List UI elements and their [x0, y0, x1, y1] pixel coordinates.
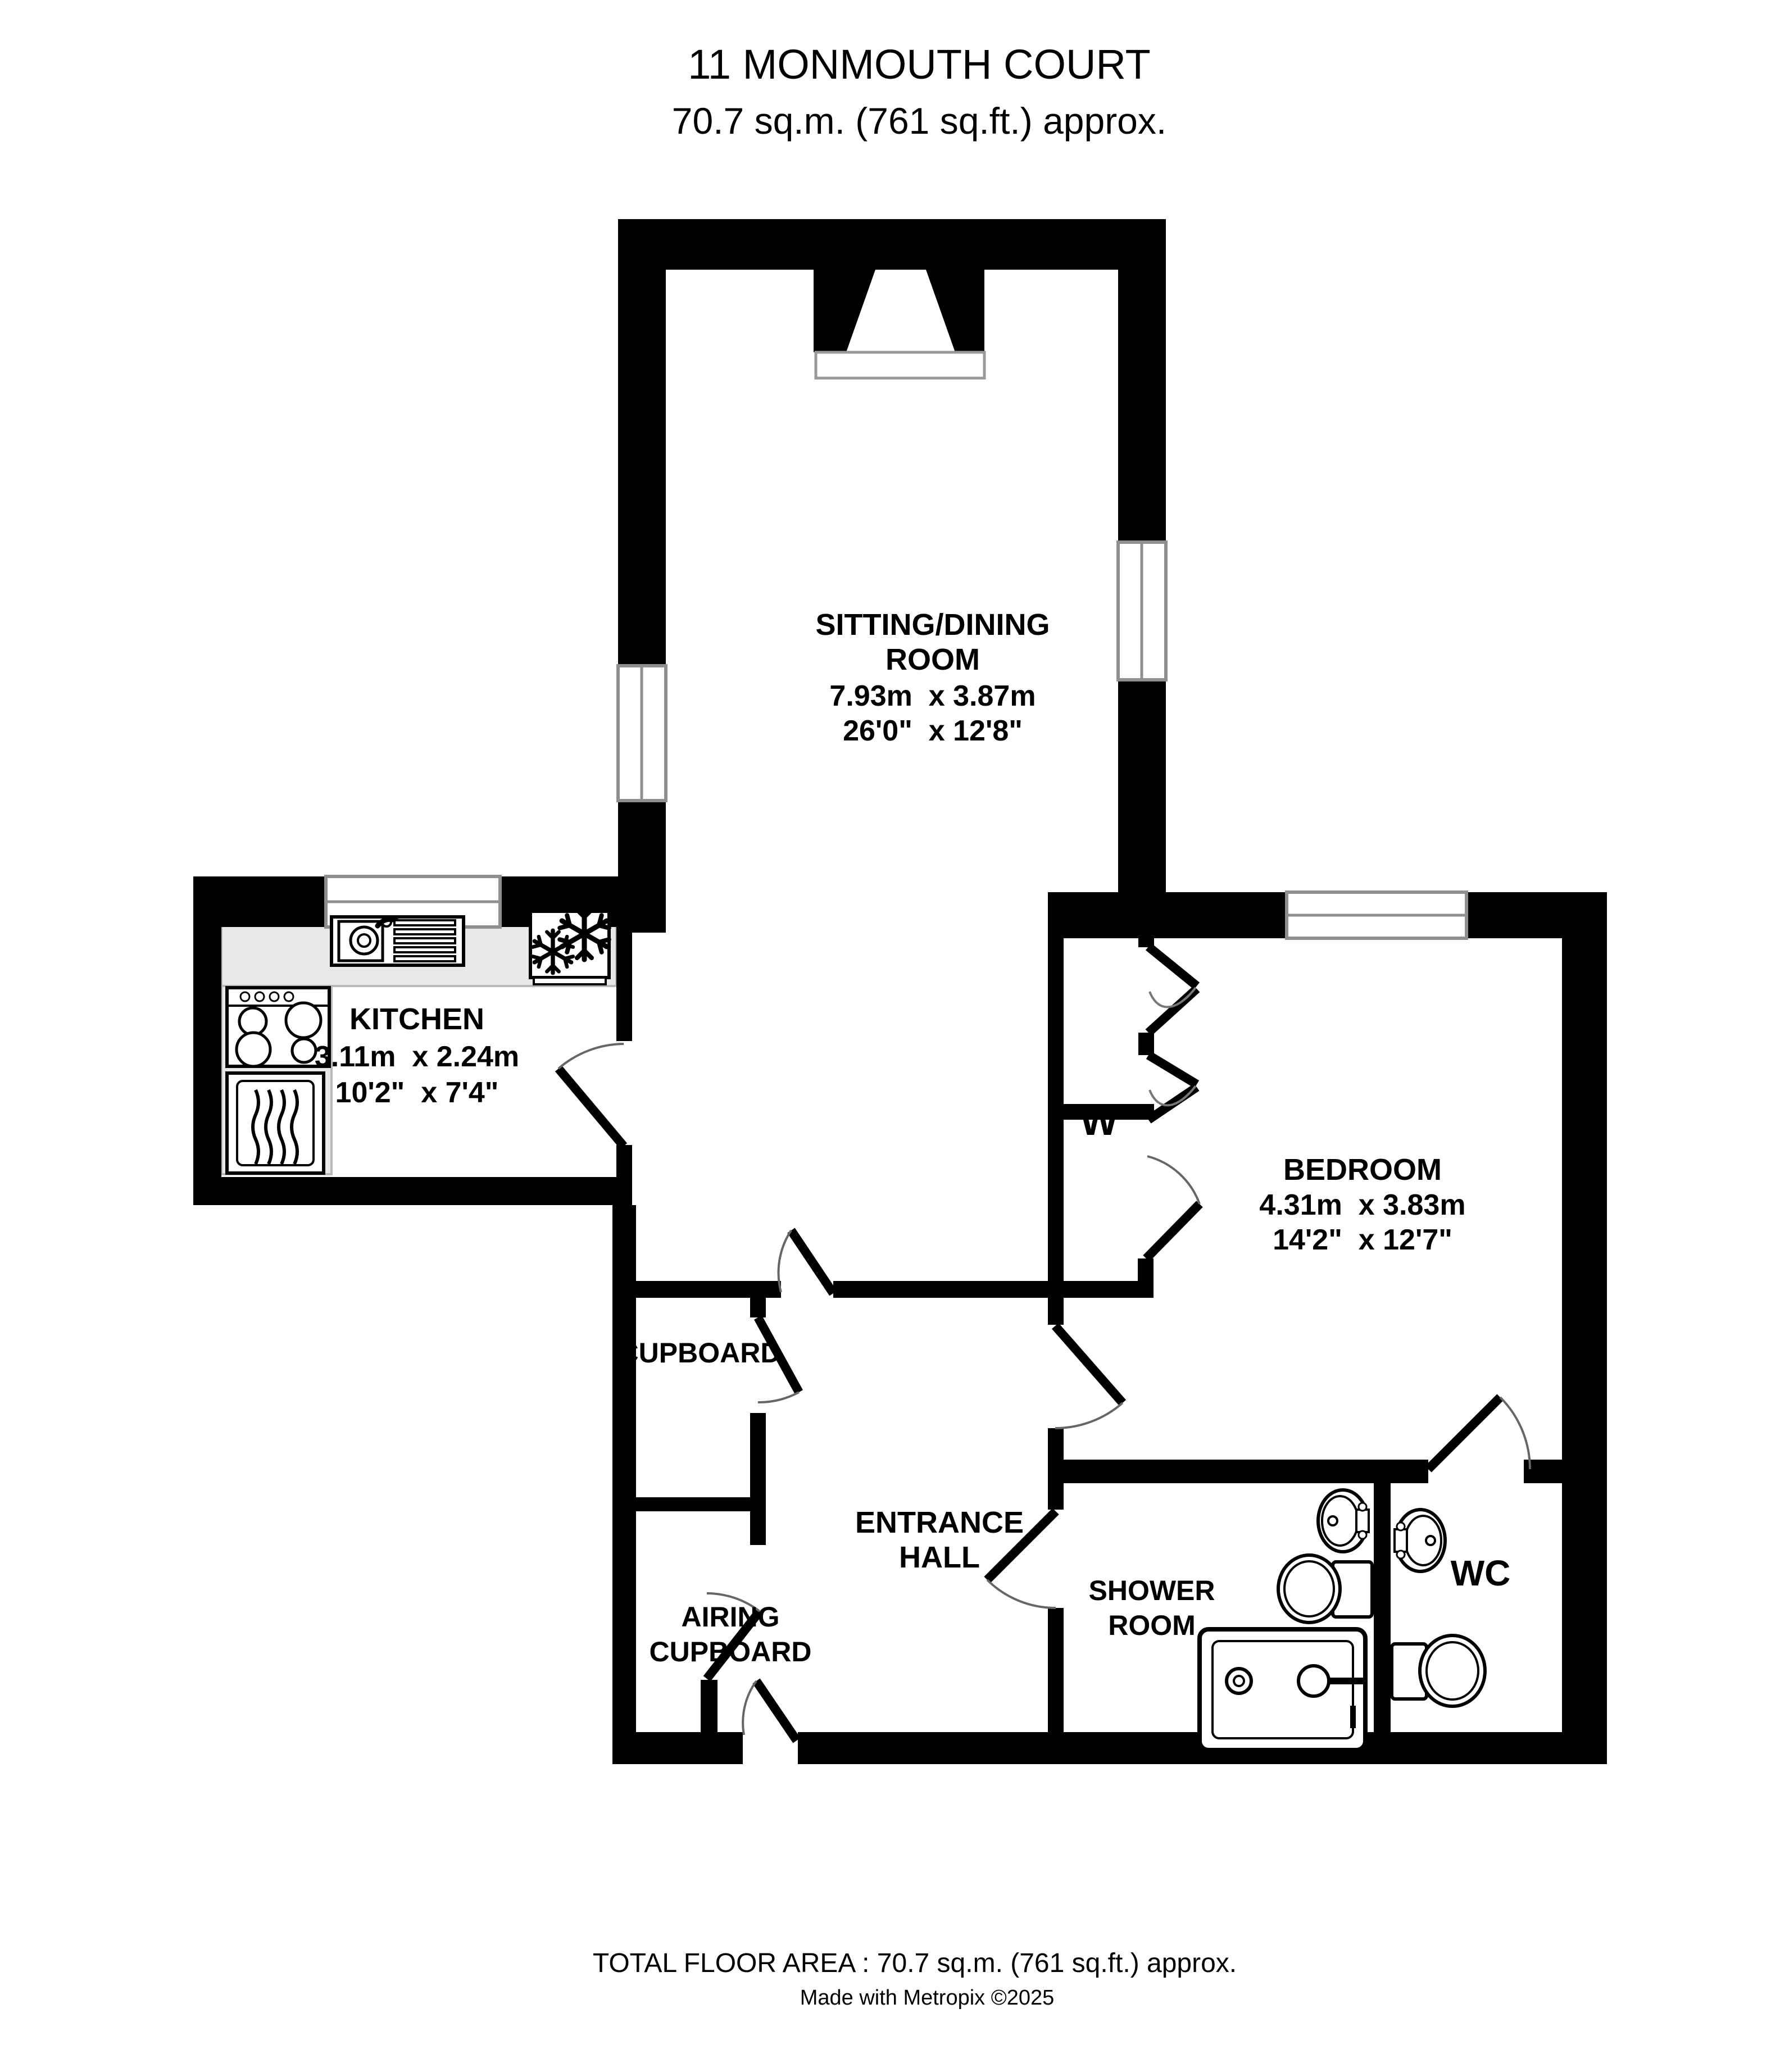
- svg-text:7.93m x 3.87m: 7.93m x 3.87m: [829, 680, 1036, 712]
- sitting-room-door: [779, 1230, 833, 1293]
- wall-kitchen-right-upper: [616, 927, 632, 1041]
- shower-toilet-icon: [1278, 1555, 1372, 1623]
- wall-hall-bedroom-divider: [1048, 938, 1064, 1325]
- boiler-icon: [227, 1073, 324, 1173]
- svg-text:3.11m x 2.24m: 3.11m x 2.24m: [315, 1040, 519, 1073]
- wall-bedroom-top-right: [1466, 892, 1607, 938]
- shower-room-label: SHOWER ROOM: [1089, 1575, 1215, 1641]
- wc-basin-icon: [1395, 1510, 1445, 1571]
- svg-text:SHOWER: SHOWER: [1089, 1575, 1215, 1606]
- wall-bottom-left: [612, 1732, 743, 1764]
- wall-cupboard-right: [750, 1413, 766, 1511]
- svg-text:SITTING/DINING: SITTING/DINING: [816, 608, 1050, 642]
- svg-text:10'2" x 7'4": 10'2" x 7'4": [335, 1076, 499, 1109]
- wall-hall-shower-divider-upper: [1048, 1428, 1064, 1510]
- wall-sitting-top: [618, 219, 1166, 270]
- wall-kitchen-right-stub: [616, 1145, 632, 1177]
- svg-text:14'2" x 12'7": 14'2" x 12'7": [1273, 1224, 1452, 1256]
- wall-sitting-right-lower: [1118, 680, 1166, 892]
- fridge-icon: [530, 908, 610, 984]
- wall-cupboard-partition: [636, 1497, 765, 1511]
- bathroom-fixtures: [1200, 1490, 1485, 1750]
- sitting-room-window-right: [1118, 542, 1166, 680]
- sitting-room-window-left: [618, 666, 666, 801]
- svg-text:AIRING: AIRING: [682, 1601, 780, 1633]
- shower-tray-icon: [1200, 1629, 1365, 1750]
- wall-cupboard-stub-top: [750, 1298, 766, 1317]
- drainer-lines: [394, 920, 455, 961]
- svg-text:ROOM: ROOM: [885, 643, 980, 676]
- wall-hall-top-right: [833, 1281, 1048, 1298]
- svg-text:26'0" x 12'8": 26'0" x 12'8": [843, 715, 1023, 747]
- wall-bedroom-door-stub: [1138, 1258, 1154, 1281]
- svg-text:ENTRANCE: ENTRANCE: [855, 1506, 1024, 1539]
- wall-lower-left: [612, 1205, 636, 1764]
- wall-bedroom-top-left: [1048, 892, 1287, 938]
- wardrobe-label: W: [1080, 1099, 1118, 1144]
- metropix-credit: Made with Metropix ©2025: [800, 1986, 1055, 2010]
- bedroom-inner-door: [1146, 1156, 1200, 1258]
- svg-text:4.31m x 3.83m: 4.31m x 3.83m: [1259, 1189, 1465, 1221]
- stove-icon: [227, 988, 329, 1066]
- wall-sitting-right-upper: [1118, 270, 1166, 542]
- wall-airing-stub-top: [750, 1511, 766, 1545]
- kitchen-door: [558, 1044, 624, 1146]
- wall-kitchen-left: [193, 876, 221, 1205]
- wall-kitchen-bottom: [193, 1177, 632, 1205]
- sitting-dining-room-label: SITTING/DINING ROOM 7.93m x 3.87m 26'0" …: [816, 608, 1050, 747]
- wall-sitting-left-upper: [618, 270, 666, 666]
- hearth: [816, 352, 984, 378]
- wc-toilet-icon: [1392, 1635, 1485, 1706]
- plan-title: 11 MONMOUTH COURT: [688, 41, 1151, 88]
- wardrobe-stub-mid: [1138, 1033, 1154, 1055]
- wall-shower-top: [1064, 1460, 1363, 1483]
- bedroom-window: [1287, 892, 1466, 938]
- wardrobe-bifold-doors: [1148, 947, 1197, 1120]
- wall-wc-top-left: [1363, 1460, 1428, 1483]
- wc-door: [1428, 1397, 1530, 1469]
- total-floor-area: TOTAL FLOOR AREA : 70.7 sq.m. (761 sq.ft…: [593, 1948, 1237, 1978]
- svg-text:ROOM: ROOM: [1108, 1610, 1196, 1641]
- wall-lobby-top: [1064, 1281, 1154, 1298]
- wc-label: WC: [1451, 1553, 1511, 1593]
- kitchen-label: KITCHEN 3.11m x 2.24m 10'2" x 7'4": [315, 1002, 519, 1109]
- cupboard-label: CUPBOARD: [619, 1337, 781, 1369]
- svg-text:BEDROOM: BEDROOM: [1283, 1153, 1442, 1187]
- wall-right-outer: [1562, 938, 1607, 1764]
- sink-icon: [332, 917, 464, 965]
- svg-text:KITCHEN: KITCHEN: [349, 1002, 484, 1036]
- svg-text:HALL: HALL: [899, 1541, 980, 1574]
- svg-text:CUPBOARD: CUPBOARD: [650, 1636, 812, 1667]
- hall-bedroom-door: [1055, 1326, 1123, 1428]
- airing-cupboard-label: AIRING CUPBOARD: [650, 1601, 812, 1667]
- wall-shower-wc-divider: [1374, 1483, 1391, 1732]
- shower-basin-icon: [1318, 1490, 1369, 1552]
- plan-subtitle: 70.7 sq.m. (761 sq.ft.) approx.: [672, 100, 1166, 142]
- wall-airing-stub-bottom: [701, 1680, 718, 1733]
- bedroom-label: BEDROOM 4.31m x 3.83m 14'2" x 12'7": [1259, 1153, 1465, 1256]
- entrance-door: [743, 1681, 797, 1741]
- floor-plan: 11 MONMOUTH COURT 70.7 sq.m. (761 sq.ft.…: [0, 0, 1771, 2072]
- wall-hall-top-left: [636, 1281, 781, 1298]
- wall-hall-shower-divider-lower: [1048, 1608, 1064, 1732]
